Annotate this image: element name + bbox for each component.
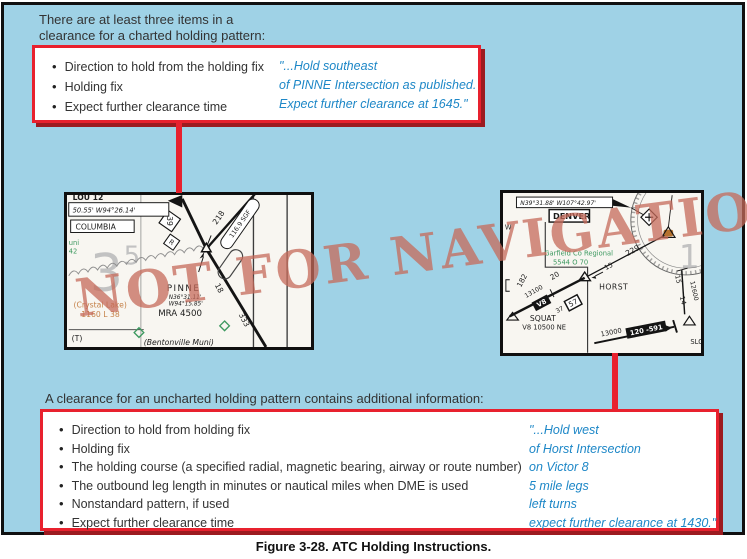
quote-line: expect further clearance at 1430." xyxy=(529,514,716,533)
dme-diamond-x-icon xyxy=(641,209,657,225)
svg-text:COLUMBIA: COLUMBIA xyxy=(75,223,116,232)
waypoint-diamond-icon xyxy=(220,321,230,331)
quote-line: of PINNE Intersection as published. xyxy=(279,76,476,95)
quote-line: 5 mile legs xyxy=(529,477,716,496)
airway-label: 18 xyxy=(213,282,226,295)
svg-text:182: 182 xyxy=(515,272,529,288)
airway-bearing-label: 218 xyxy=(211,209,227,226)
partial-label: LOU 12 xyxy=(73,195,104,202)
fix-name: PINNE xyxy=(167,284,200,294)
t-label: (T) xyxy=(72,334,83,343)
mileage-arrow xyxy=(595,272,603,276)
horst-chart-svg: 16 N39°31.88' W107°42.97' DENVER W xyxy=(503,193,701,353)
mra-label: MRA 4500 xyxy=(158,309,202,319)
partial-label: SLO xyxy=(690,338,701,346)
edge-label: W xyxy=(505,224,512,232)
reporting-point-box: R xyxy=(164,234,180,250)
coordinate-label-box: N39°31.88' W107°42.97' xyxy=(516,197,630,208)
airway-label: 333 xyxy=(237,311,252,328)
flag-icon xyxy=(168,195,182,208)
bullet-item: Nonstandard pattern, if used xyxy=(59,495,522,514)
figure-caption: Figure 3-28. ATC Holding Instructions. xyxy=(0,539,747,554)
airport-label: 1160 L 38 xyxy=(81,310,120,319)
svg-text:15: 15 xyxy=(673,274,683,284)
figure-panel: There are at least three items in a clea… xyxy=(1,2,745,535)
intro-line-1: There are at least three items in a xyxy=(39,12,265,28)
airport-label: 42 xyxy=(69,248,78,256)
bullet-item: The holding course (a specified radial, … xyxy=(59,458,522,477)
bullet-item: Holding fix xyxy=(59,440,522,459)
mileage-box: 57 xyxy=(564,295,582,311)
svg-text:37: 37 xyxy=(555,305,565,315)
mileage-arrowhead xyxy=(591,276,596,279)
svg-text:18: 18 xyxy=(213,282,226,295)
svg-text:N39°31.88' W107°42.97': N39°31.88' W107°42.97' xyxy=(520,199,596,207)
fix-name: SQUAT xyxy=(530,314,556,323)
airport-label: (Crystal Lake) xyxy=(74,301,127,310)
coordinate-label-box: 50.55' W94°26.14' xyxy=(69,203,169,216)
quote-line: of Horst Intersection xyxy=(529,440,716,459)
mea-box: 120 -591 xyxy=(625,321,667,339)
columbia-label-box: COLUMBIA xyxy=(71,220,134,233)
holding-racetrack-icon xyxy=(215,247,245,282)
quote-line: Expect further clearance at 1645." xyxy=(279,95,476,114)
grid-elevation-number: 3 xyxy=(90,244,123,304)
grid-elevation-number: 5 xyxy=(124,241,141,271)
pinne-chart-svg: 3 5 39 R 218 xyxy=(67,195,311,347)
fix-latitude: N36°31.11' xyxy=(169,295,202,301)
quote-line: left turns xyxy=(529,495,716,514)
svg-text:12600: 12600 xyxy=(688,281,699,302)
quote-line: "...Hold southeast xyxy=(279,57,476,76)
quote-line: on Victor 8 xyxy=(529,458,716,477)
inbound-arrowhead xyxy=(200,252,205,259)
svg-text:50.55' W94°26.14': 50.55' W94°26.14' xyxy=(73,206,136,214)
bracket-symbol xyxy=(506,280,510,292)
airport-label: Garfield Co Regional xyxy=(544,250,613,258)
fix-name: HORST xyxy=(599,282,628,291)
mea-label: 13000 xyxy=(600,327,623,339)
uncharted-holding-intro: A clearance for an uncharted holding pat… xyxy=(45,391,484,407)
bullet-item: Direction to hold from the holding fix xyxy=(52,57,264,77)
leader-line xyxy=(668,195,672,228)
connector-line-top xyxy=(176,121,182,193)
uncharted-holding-quote: "...Hold west of Horst Intersection on V… xyxy=(529,421,716,533)
bullet-item: Holding fix xyxy=(52,77,264,97)
mileage-label: 20 xyxy=(548,269,561,282)
svg-text:20: 20 xyxy=(548,269,561,282)
quote-line: "...Hold west xyxy=(529,421,716,440)
intro-line-2: clearance for a charted holding pattern: xyxy=(39,28,265,44)
airport-label: 5544 O 70 xyxy=(553,258,588,266)
airport-label: (Bentonville Muni) xyxy=(144,338,214,347)
svg-text:39: 39 xyxy=(165,216,174,226)
fix-longitude: W94°15.85' xyxy=(169,302,203,308)
airport-label: uni xyxy=(69,239,80,247)
connector-line-bottom xyxy=(612,353,618,411)
uncharted-holding-box: Direction to hold from holding fix Holdi… xyxy=(40,409,719,531)
mea-label: 12600 xyxy=(688,281,699,302)
inbound-arrow xyxy=(199,257,204,272)
denver-label-box: DENVER xyxy=(549,210,591,222)
charted-holding-bullets: Direction to hold from the holding fix H… xyxy=(52,57,264,117)
svg-text:333: 333 xyxy=(237,311,252,328)
airway-bearing-label: 182 xyxy=(515,272,529,288)
svg-text:13000: 13000 xyxy=(600,327,623,339)
mileage-label: 14 xyxy=(678,295,688,305)
bullet-item: Direction to hold from holding fix xyxy=(59,421,522,440)
mileage-label: 37 xyxy=(555,305,565,315)
airway-note: V8 10500 NE xyxy=(522,324,566,332)
bullet-item: The outbound leg length in minutes or na… xyxy=(59,477,522,496)
uncharted-holding-bullets: Direction to hold from holding fix Holdi… xyxy=(59,421,522,533)
charted-holding-intro: There are at least three items in a clea… xyxy=(39,12,265,44)
svg-text:218: 218 xyxy=(211,209,227,226)
fix-triangle-icon xyxy=(684,316,696,325)
navaid-frequency-oval: 116.9 SGF xyxy=(218,197,261,251)
bullet-item: Expect further clearance time xyxy=(59,514,522,533)
mileage-label: 15 xyxy=(673,274,683,284)
svg-text:14: 14 xyxy=(678,295,688,305)
svg-text:DENVER: DENVER xyxy=(553,211,591,221)
sectional-chart-pinne: 3 5 39 R 218 xyxy=(64,192,314,350)
charted-holding-quote: "...Hold southeast of PINNE Intersection… xyxy=(279,57,476,114)
enroute-chart-horst: 16 N39°31.88' W107°42.97' DENVER W xyxy=(500,190,704,356)
charted-holding-box: Direction to hold from the holding fix H… xyxy=(32,45,481,123)
svg-text:120 -591: 120 -591 xyxy=(629,323,663,337)
bullet-item: Expect further clearance time xyxy=(52,97,264,117)
